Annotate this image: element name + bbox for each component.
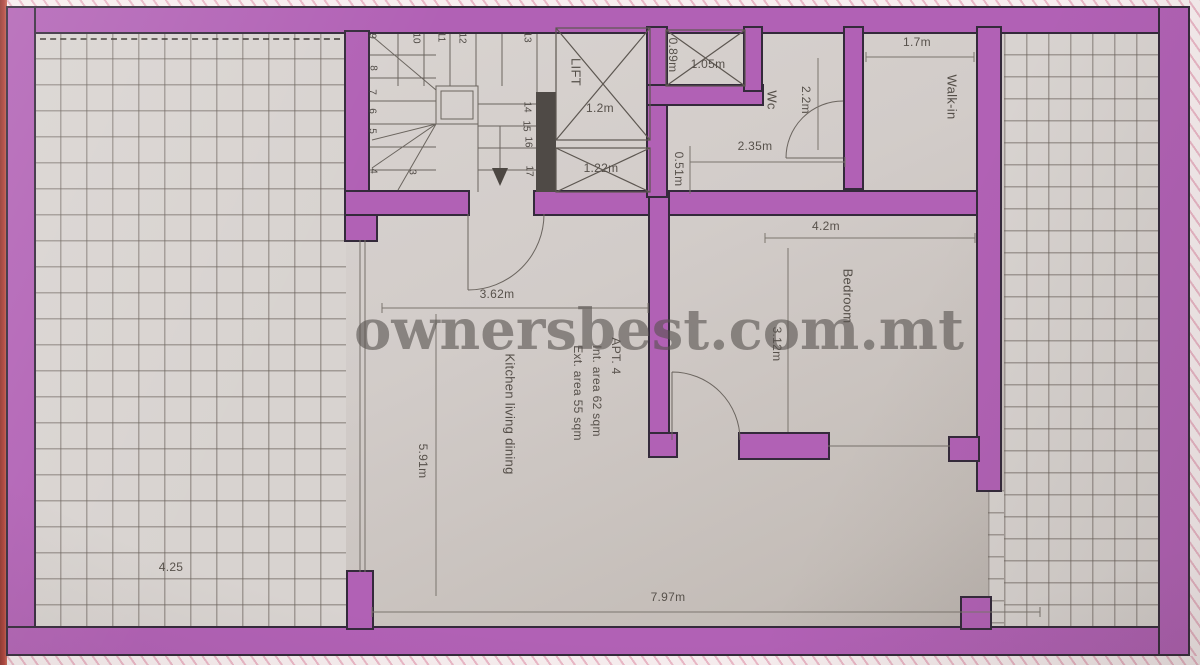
door-arc-bedroom: [672, 372, 740, 440]
stair-down-arrow: [492, 168, 508, 186]
door-swings: [468, 101, 843, 440]
door-arc-entry: [468, 214, 544, 290]
dim-lift-width: 1.2m: [586, 101, 614, 115]
dim-living-width: 7.97m: [651, 590, 686, 604]
watermark: ownersbest.com.mt: [354, 297, 964, 363]
room-label-lift: LIFT: [569, 58, 584, 86]
room-label-wc: Wc: [765, 90, 780, 109]
dim-bedroom-width: 4.2m: [812, 219, 840, 233]
dim-walkin-width: 1.7m: [903, 35, 931, 49]
dim-wc-depth: 2.2m: [799, 86, 813, 114]
window-lines: [360, 240, 950, 572]
dim-lower-shaft: 1.22m: [584, 161, 619, 175]
room-label-kitchen: Kitchen living dining: [503, 353, 518, 474]
dim-top-shaft-height: 0.89m: [666, 38, 680, 73]
floor-plan-photo: LIFT 1.2m 1.22m 1.05m 0.89m Wc 2.2m 2.35…: [0, 0, 1200, 665]
dim-hall-gap: 0.51m: [672, 152, 686, 187]
dim-kitchen-depth: 5.91m: [416, 444, 430, 479]
room-label-walkin: Walk-in: [945, 75, 960, 120]
dim-hall-width: 2.35m: [738, 139, 773, 153]
dim-top-shaft-width: 1.05m: [691, 57, 726, 71]
stairs: [370, 34, 537, 192]
door-arc-wc: [786, 101, 843, 158]
dim-terrace-left: 4.25: [159, 560, 184, 574]
